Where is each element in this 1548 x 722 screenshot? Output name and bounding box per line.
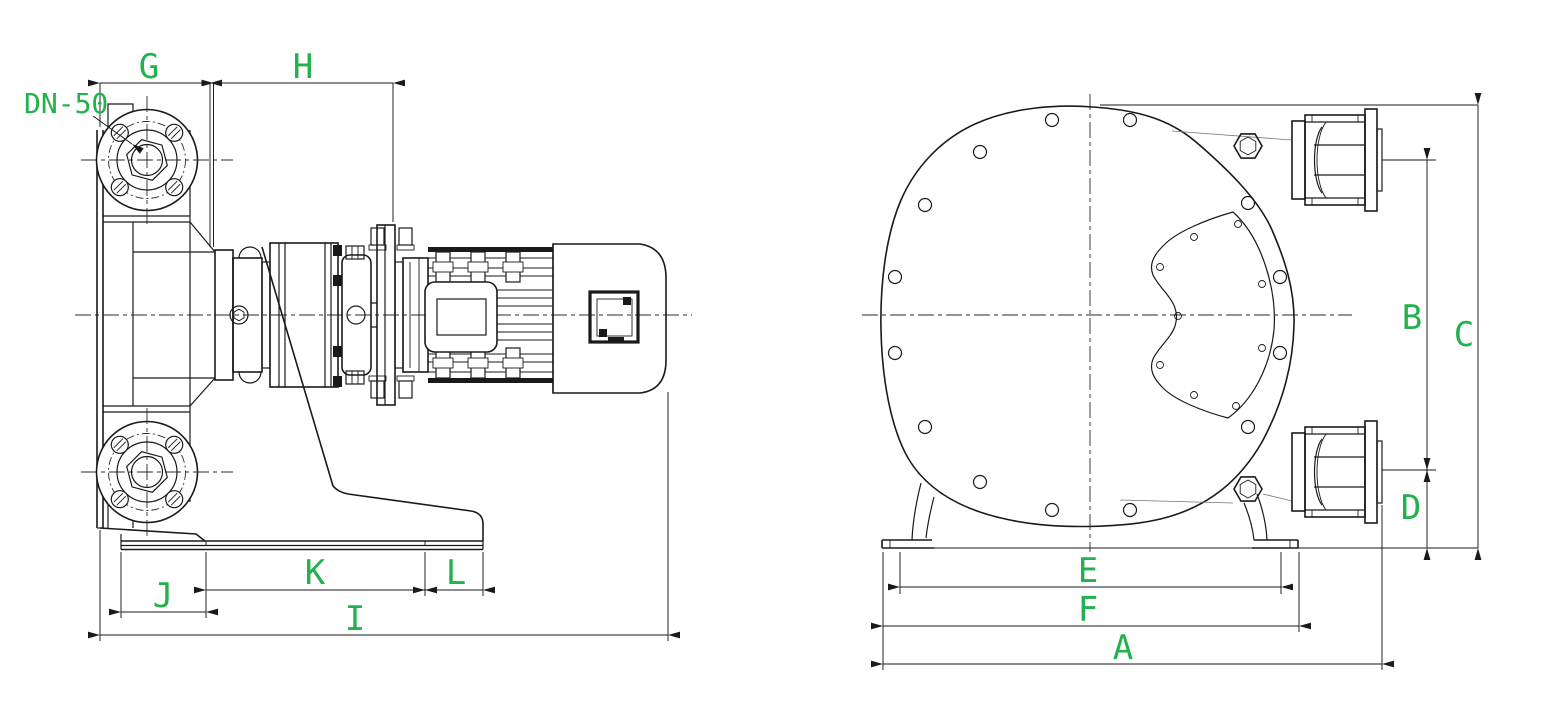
bottom-port — [1292, 421, 1382, 523]
tie-rod-line-bottom — [1120, 494, 1292, 503]
side-view: G H DN-50 I J K L — [24, 47, 692, 641]
front-view: B D C E F A — [862, 94, 1478, 670]
dim-label-e: E — [1078, 551, 1098, 591]
tie-rod-line-top — [1172, 131, 1292, 140]
pump-dimension-drawing: G H DN-50 I J K L — [0, 0, 1548, 722]
base-plate — [121, 541, 483, 550]
top-port — [1292, 109, 1382, 211]
dim-label-a: A — [1113, 628, 1133, 668]
motor — [553, 244, 666, 393]
feet — [882, 483, 1478, 548]
dim-label-d: D — [1401, 488, 1421, 528]
dim-label-g: G — [139, 47, 159, 87]
pump-housing-outline — [881, 106, 1294, 526]
technical-drawing-page: G H DN-50 I J K L — [0, 0, 1548, 722]
dim-label-j: J — [153, 576, 173, 616]
dim-label-c: C — [1454, 315, 1474, 355]
dim-label-h: H — [293, 47, 313, 87]
hex-bolt-top — [1234, 134, 1262, 158]
side-dimensions: G H DN-50 I J K L — [24, 47, 668, 641]
front-dimensions: B D C E F A — [883, 105, 1478, 670]
port-size-label: DN-50 — [24, 87, 108, 120]
dim-label-i: I — [345, 599, 365, 639]
dim-label-k: K — [305, 553, 326, 593]
dim-label-f: F — [1078, 590, 1098, 630]
dim-label-l: L — [446, 553, 466, 593]
dim-label-b: B — [1402, 298, 1422, 338]
